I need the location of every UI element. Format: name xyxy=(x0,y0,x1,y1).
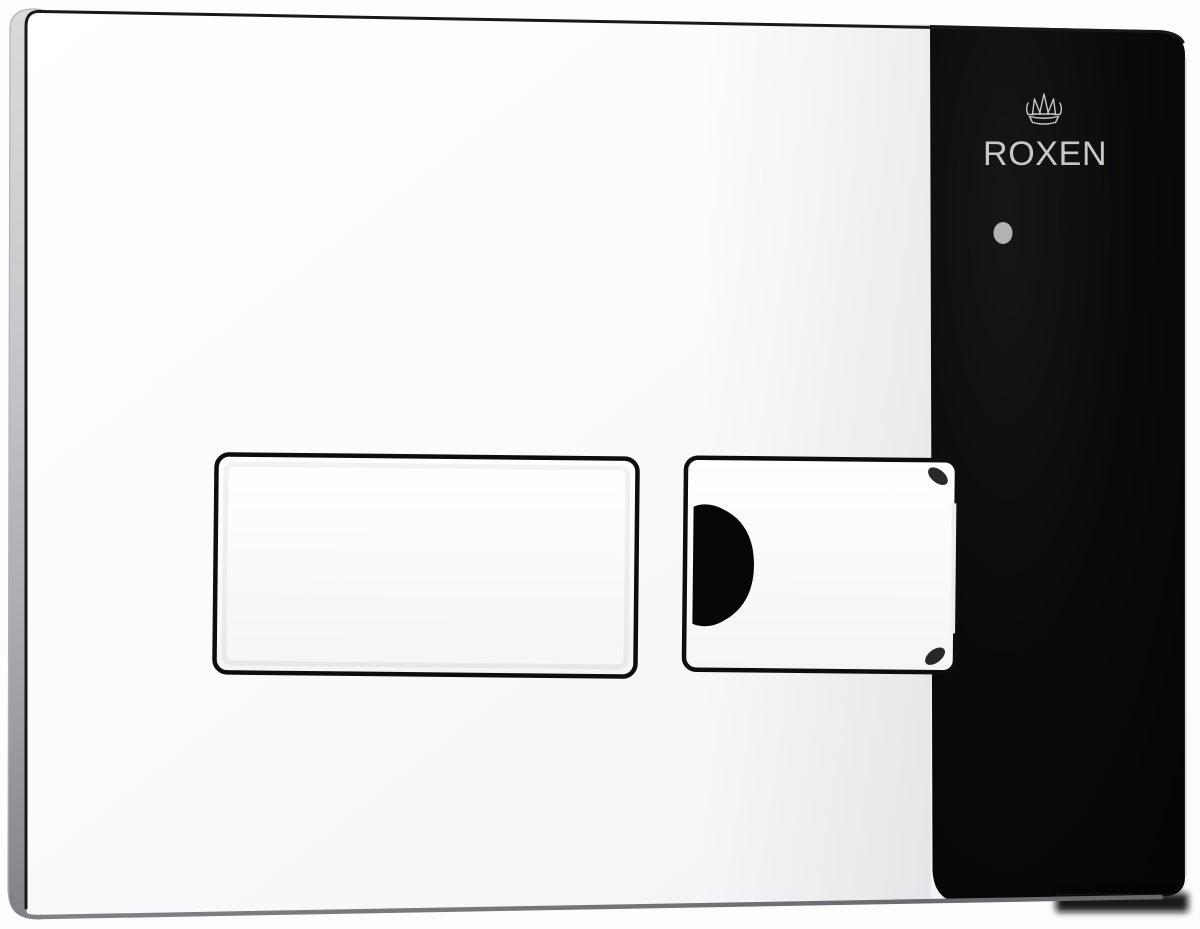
large-flush-button[interactable] xyxy=(214,454,637,676)
small-flush-button-right-highlight xyxy=(953,503,954,633)
indicator-dot-icon xyxy=(994,222,1013,244)
small-flush-button[interactable] xyxy=(684,458,957,673)
brand-name: ROXEN xyxy=(983,135,1109,173)
product-photo: ROXEN xyxy=(0,0,1200,929)
flush-plate: ROXEN xyxy=(8,9,1188,919)
large-flush-button-face[interactable] xyxy=(214,454,637,676)
